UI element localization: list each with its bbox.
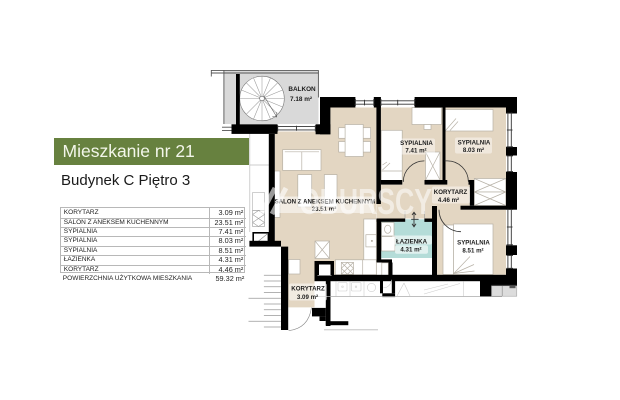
svg-text:SYPIALNIA: SYPIALNIA [458,139,491,146]
svg-text:SYPIALNIA: SYPIALNIA [457,240,490,247]
svg-text:8.51 m²: 8.51 m² [462,248,483,255]
svg-text:8.03 m²: 8.03 m² [463,147,484,154]
svg-text:7.18 m²: 7.18 m² [290,96,312,103]
svg-text:SYPIALNIA: SYPIALNIA [400,140,433,147]
svg-text:KORYTARZ: KORYTARZ [291,286,325,293]
svg-text:KORYTARZ: KORYTARZ [434,189,468,196]
svg-text:4.31 m²: 4.31 m² [400,247,421,254]
svg-text:4.46 m²: 4.46 m² [438,197,459,204]
svg-text:7.41 m²: 7.41 m² [405,148,426,155]
svg-text:ŁAZIENKA: ŁAZIENKA [396,239,428,246]
svg-text:OBURSCY: OBURSCY [299,181,432,222]
svg-text:3.09 m²: 3.09 m² [297,294,318,301]
svg-text:BALKON: BALKON [288,86,316,93]
